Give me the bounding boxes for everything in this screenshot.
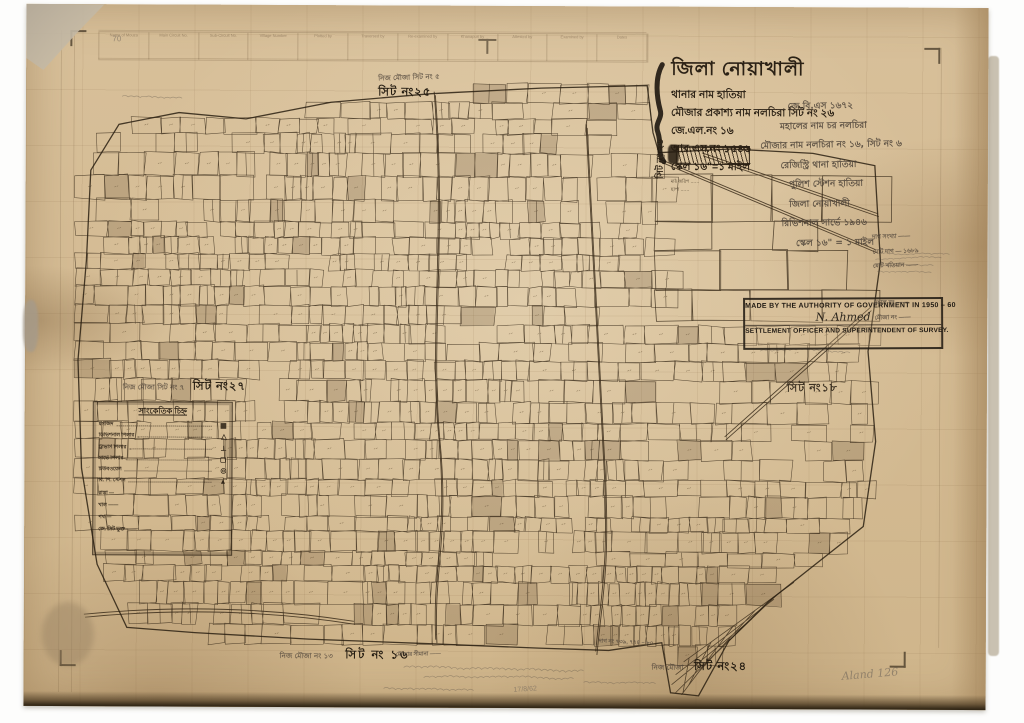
map-sheet-paper: Name of Mouza Main Circuit No. Sub-Circu… — [23, 4, 988, 710]
bottom-scan-shadow — [23, 691, 985, 710]
strip-column: Attested by — [498, 34, 548, 61]
adjacent-sheet-label-top: নিজ মৌজা সিট নং ৫ সিট নং২৫ — [378, 71, 440, 102]
legend-leader-dots — [137, 436, 211, 438]
legend-leader-dots — [129, 447, 211, 449]
bp-station-symbol-icon: ▲ — [214, 478, 226, 485]
legend-item-label: মসজিদ — [99, 421, 114, 429]
legend-item: মসজিদ ▦ — [99, 421, 227, 430]
strip-column: Traversed by — [348, 33, 398, 60]
strip-column: Dates — [597, 34, 647, 61]
survey-record-strip: Name of Mouza Main Circuit No. Sub-Circu… — [98, 31, 648, 62]
neatline-corner-mark — [924, 48, 940, 64]
sheet-note-handwritten: নিজ মৌজা নং ১৩ — [280, 652, 333, 660]
legend-item: ট্রাভার্স পিলার ⊥ — [99, 444, 227, 453]
legend-extra-canal: খাল —— — [98, 502, 226, 510]
survey-pillar-symbol-icon: ▢ — [215, 455, 227, 463]
strip-column: Examined by — [548, 34, 598, 61]
sheet-number-vertical-label: সিট নং ২৬ — [652, 95, 667, 179]
sheet-note-handwritten: নিজ মৌজা সিট নং ৭ — [123, 383, 184, 391]
adjacent-sheet-label-right: সিট নং১৮ — [787, 379, 838, 398]
strip-column: Village Number — [249, 33, 299, 60]
legend-extra-path: পথ — — [98, 514, 226, 522]
legend-extra-road: রাস্তা — — [98, 490, 226, 498]
legend-item: বি. পি. স্টেশন ▲ — [98, 477, 226, 486]
district-title: জিলা নোয়াখালী — [671, 55, 951, 88]
edge-damage-patch — [23, 300, 38, 352]
legend-leader-dots — [125, 469, 212, 471]
scanned-map-page: Name of Mouza Main Circuit No. Sub-Circu… — [0, 0, 1024, 723]
t-junction-mark — [478, 39, 496, 54]
legend-item: টিউবওয়েল ◎ — [98, 466, 226, 475]
sheet-note-handwritten: নিজ মৌজা — [652, 664, 684, 672]
stain-patch — [42, 602, 94, 666]
mosque-symbol-icon: ▦ — [215, 422, 227, 430]
legend-leader-dots — [116, 424, 211, 426]
legend-item-label: সার্ভে পিলার — [99, 455, 124, 463]
legend-item: সার্ভে পিলার ▢ — [99, 455, 227, 464]
legend-box: সাংকেতিক চিহ্ন মসজিদ ▦ ডিভিশনাল পিলার △ … — [92, 401, 233, 556]
legend-item: ডিভিশনাল পিলার △ — [99, 433, 227, 442]
sheet-number-stamp: সিট নং২৭ — [193, 381, 246, 393]
legend-item-label: ডিভিশনাল পিলার — [99, 433, 135, 441]
legend-leader-dots — [129, 480, 212, 482]
legend-extra-included-plots: জে. সিট ভুক্ত —— — [98, 526, 226, 534]
diagonal-scale-bar — [676, 146, 750, 165]
strip-column: Main Circuit No. — [149, 32, 199, 59]
legend-title: সাংকেতিক চিহ্ন — [99, 405, 227, 419]
adjacent-sheet-label-left: নিজ মৌজা সিট নং ৭ সিট নং২৭ — [123, 376, 246, 397]
legend-leader-dots — [126, 458, 211, 460]
sheet-number-stamp: সিট নং২৫ — [378, 83, 439, 102]
strip-column: Name of Mouza — [99, 32, 149, 59]
legend-item-label: বি. পি. স্টেশন — [98, 477, 125, 485]
boundary-ink-note: মৌজার সীমানা —— — [396, 651, 441, 660]
legend-item-label: টিউবওয়েল — [98, 466, 121, 474]
legend-item-label: ট্রাভার্স পিলার — [99, 444, 127, 452]
strip-column: Plotted by — [299, 33, 349, 60]
adjacent-sheet-label-bottom-right: নিজ মৌজা সিট নং২৪ — [652, 657, 748, 677]
adjacent-sheet-label-bottom-left: নিজ মৌজা নং ১৩ সিট নং ১৬ — [280, 645, 410, 666]
edge-wear-shading — [951, 8, 988, 710]
division-pillar-symbol-icon: △ — [215, 433, 227, 441]
sheet-number-stamp: সিট নং২৪ — [694, 661, 747, 673]
sheet-note-handwritten: নিজ মৌজা সিট নং ৫ — [378, 71, 440, 85]
pencil-number-note: 70 — [112, 34, 121, 43]
strip-column: Sub-Circuit No. — [199, 33, 249, 60]
traverse-pillar-symbol-icon: ⊥ — [215, 444, 227, 452]
stamp-officer-text: SETTLEMENT OFFICER AND SUPERINTENDENT OF… — [745, 324, 941, 335]
strip-column: Re-examined by — [398, 34, 448, 61]
sheet-number-stamp: সিট নং১৮ — [787, 379, 838, 399]
tubewell-symbol-icon: ◎ — [214, 467, 226, 475]
